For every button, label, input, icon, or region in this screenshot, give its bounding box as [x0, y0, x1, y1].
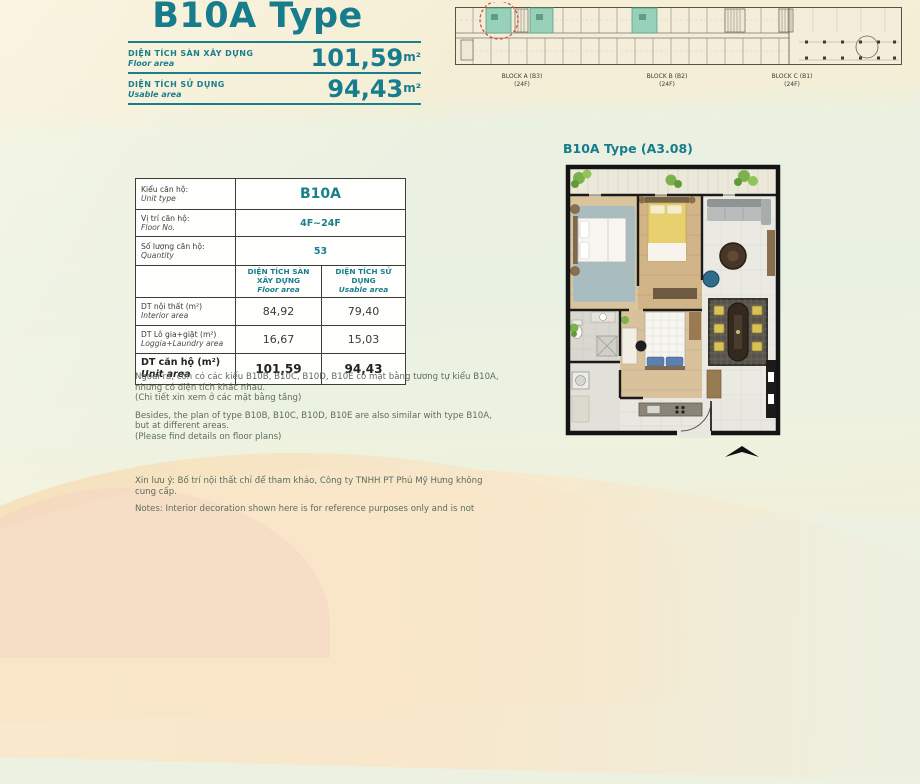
floor-plan	[561, 160, 785, 464]
notes-similar-types: Ngoài ra, còn có các kiểu B10B, B10C, B1…	[135, 372, 495, 443]
bed2	[645, 197, 689, 261]
desk	[622, 328, 637, 364]
loggia-floor-area: 16,67	[235, 325, 321, 353]
table-row: Số lượng căn hộ: Quantity 53	[136, 237, 406, 266]
dining-set	[709, 299, 767, 365]
row-label: Kiểu căn hộ: Unit type	[136, 179, 236, 210]
block-label-c: BLOCK C (B1)(24F)	[747, 73, 837, 89]
bed1	[573, 216, 626, 264]
block-label-b: BLOCK B (B2)(24F)	[622, 73, 712, 89]
area-value: 101,59m²	[311, 44, 421, 72]
page-title: B10A Type	[85, 0, 430, 36]
interior-floor-area: 84,92	[235, 297, 321, 325]
table-row: Vị trí căn hộ: Floor No. 4F~24F	[136, 210, 406, 237]
wardrobe	[689, 312, 701, 340]
row-label: DT Lô gia+giặt (m²) Loggia+Laundry area	[136, 325, 236, 353]
unit-table: Kiểu căn hộ: Unit type B10A Vị trí căn h…	[135, 178, 406, 385]
area-value: 94,43m²	[327, 75, 421, 103]
note-en: Besides, the plan of type B10B, B10C, B1…	[135, 411, 495, 443]
block-label-a: BLOCK A (B3)(24F)	[477, 73, 567, 89]
row-label: Vị trí căn hộ: Floor No.	[136, 210, 236, 237]
notes-disclaimer: Xin lưu ý: Bố trí nội thất chỉ để tham k…	[135, 476, 495, 515]
loggia-usable-area: 15,03	[322, 325, 406, 353]
unit-label: m²	[403, 81, 421, 95]
col-header-floor-area: DIỆN TÍCH SÀN XÂY DỰNG Floor area	[235, 266, 321, 298]
quantity-value: 53	[235, 237, 405, 266]
floor-plan-svg	[561, 160, 785, 460]
nightstand	[571, 267, 580, 276]
disclaimer-en: Notes: Interior decoration shown here is…	[135, 504, 495, 515]
row-label: DT nội thất (m²) Interior area	[136, 297, 236, 325]
interior-usable-area: 79,40	[322, 297, 406, 325]
entry-cabinet	[707, 370, 721, 398]
disclaimer-vi: Xin lưu ý: Bố trí nội thất chỉ để tham k…	[135, 476, 495, 497]
table-row: Kiểu căn hộ: Unit type B10A	[136, 179, 406, 210]
area-label-en: Floor area	[128, 59, 253, 68]
floor-range-value: 4F~24F	[235, 210, 405, 237]
tv-cabinet	[767, 230, 775, 276]
nightstand	[571, 205, 580, 214]
desk-chair	[636, 341, 647, 352]
area-label-en: Usable area	[128, 90, 225, 99]
building-overview: BLOCK A (B3)(24F) BLOCK B (B2)(24F) BLOC…	[453, 2, 913, 94]
sink	[600, 314, 607, 321]
col-header-usable-area: DIỆN TÍCH SỬ DỤNG Usable area	[322, 266, 406, 298]
kitchen-counter	[639, 403, 702, 416]
row-label: Số lượng căn hộ: Quantity	[136, 237, 236, 266]
area-summary: DIỆN TÍCH SÀN XÂY DỰNG Floor area 101,59…	[128, 41, 421, 105]
dresser	[653, 288, 697, 299]
nightstand	[639, 197, 646, 204]
table-row: DT Lô gia+giặt (m²) Loggia+Laundry area …	[136, 325, 406, 353]
building-plan-svg	[453, 2, 908, 72]
table-row: DT nội thất (m²) Interior area 84,92 79,…	[136, 297, 406, 325]
table-header-row: DIỆN TÍCH SÀN XÂY DỰNG Floor area DIỆN T…	[136, 266, 406, 298]
empty-cell	[136, 266, 236, 298]
floor-plan-title: B10A Type (A3.08)	[563, 141, 693, 156]
area-label-vi: DIỆN TÍCH SÀN XÂY DỰNG	[128, 49, 253, 58]
laundry	[572, 372, 589, 422]
area-summary-row: DIỆN TÍCH SỬ DỤNG Usable area 94,43m²	[128, 72, 421, 103]
note-vi: Ngoài ra, còn có các kiểu B10B, B10C, B1…	[135, 372, 495, 404]
nightstand	[689, 197, 696, 204]
area-summary-row: DIỆN TÍCH SÀN XÂY DỰNG Floor area 101,59…	[128, 41, 421, 72]
unit-label: m²	[403, 50, 421, 64]
entrance-arrow-icon	[725, 446, 759, 457]
bed3	[645, 312, 685, 370]
armchair	[703, 271, 719, 287]
area-label-vi: DIỆN TÍCH SỬ DỤNG	[128, 80, 225, 89]
kitchen-sink	[647, 406, 660, 414]
unit-type-value: B10A	[235, 179, 405, 210]
